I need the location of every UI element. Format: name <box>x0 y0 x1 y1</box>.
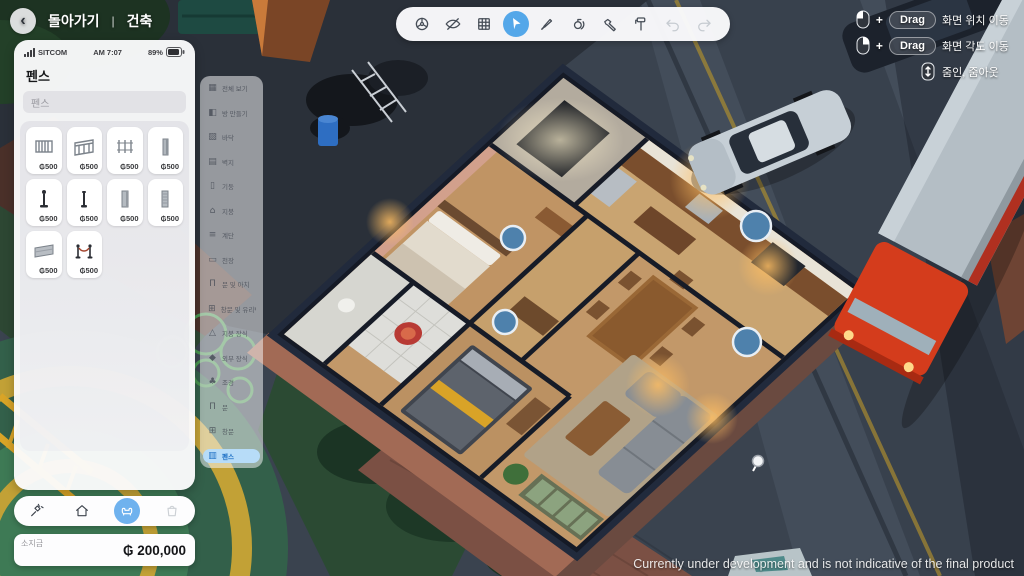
item-price: ₲500 <box>80 162 98 171</box>
wallet-label: 소지금 <box>21 538 43 549</box>
phone-status-bar: SITCOM AM 7:07 89% <box>14 40 195 59</box>
window2-icon: ⊞ <box>207 426 218 436</box>
category-bar: ▦ 전체 보기◧ 방 만들기▨ 바닥▤ 벽지▯ 기둥⌂ 지붕≡ 계단▭ 천장Π <box>200 76 263 468</box>
wallet-box: 소지금 ₲ 200,000 <box>14 534 195 566</box>
plus-sign: + <box>876 39 883 53</box>
item-price: ₲500 <box>120 214 138 223</box>
catalog-item-3[interactable]: ₲500 <box>107 127 143 174</box>
item-price: ₲500 <box>80 214 98 223</box>
camera-hint-zoom: 줌인, 줌아웃 <box>920 62 1014 81</box>
back-button[interactable]: ‹ <box>10 8 36 34</box>
window-icon: ⊞ <box>207 304 217 314</box>
category-label: 벽지 <box>222 157 234 167</box>
category-pillar[interactable]: ▯ 기둥 <box>203 179 260 193</box>
item-price: ₲500 <box>161 162 179 171</box>
plus-sign: + <box>876 13 883 27</box>
pillar-icon: ▯ <box>207 181 218 191</box>
catalog-item-1[interactable]: ₲500 <box>26 127 62 174</box>
item-price: ₲500 <box>120 162 138 171</box>
catalog-panel: SITCOM AM 7:07 89% 펜스 펜스 ₲500 ₲500 ₲500 … <box>14 40 195 490</box>
deco-icon: ◆ <box>207 353 218 363</box>
category-door[interactable]: Π 문 및 아치 <box>203 277 260 291</box>
shop-icon[interactable] <box>159 498 185 524</box>
landscape-icon: ♣ <box>207 377 218 387</box>
mode-label: 건축 <box>127 11 153 31</box>
roof-icon: ⌂ <box>207 206 218 216</box>
category-label: 계단 <box>222 230 234 240</box>
grid-view-icon[interactable] <box>471 11 497 37</box>
drag-chip: Drag <box>889 11 936 29</box>
post-cap-icon <box>71 195 97 211</box>
grid-icon: ▦ <box>207 83 218 93</box>
fence-icon: ▥ <box>207 451 218 461</box>
category-door2[interactable]: Π 문 <box>203 400 260 414</box>
category-label: 바닥 <box>222 132 234 142</box>
hint-label-pan: 화면 위치 이동 <box>942 12 1014 28</box>
hide-walls-icon[interactable] <box>440 11 466 37</box>
bottom-nav <box>14 496 195 526</box>
category-label: 창문 <box>222 426 234 436</box>
home-icon[interactable] <box>69 498 95 524</box>
mouse-right-button-icon <box>856 36 870 55</box>
wall-icon: ▤ <box>207 157 218 167</box>
category-label: 외부 장식 <box>222 353 248 363</box>
item-price: ₲500 <box>39 162 57 171</box>
pillar-fluted-icon <box>152 195 178 211</box>
item-price: ₲500 <box>39 266 57 275</box>
category-stairs[interactable]: ≡ 계단 <box>203 228 260 242</box>
bar-divider: | <box>112 14 115 28</box>
paint-brush-icon[interactable] <box>534 11 560 37</box>
fence-mesh-icon <box>31 143 57 159</box>
room-icon: ◧ <box>207 108 218 118</box>
category-window[interactable]: ⊞ 창문 및 유리벽 <box>203 302 260 316</box>
catalog-item-6[interactable]: ₲500 <box>67 179 103 226</box>
select-cursor-icon[interactable] <box>503 11 529 37</box>
catalog-item-7[interactable]: ₲500 <box>107 179 143 226</box>
catalog-item-4[interactable]: ₲500 <box>148 127 184 174</box>
catalog-item-2[interactable]: ₲500 <box>67 127 103 174</box>
scroll-wheel-icon <box>920 62 936 81</box>
dev-watermark: Currently under development and is not i… <box>633 557 1014 571</box>
item-price: ₲500 <box>39 214 57 223</box>
undo-icon[interactable] <box>660 11 686 37</box>
category-label: 기둥 <box>222 181 234 191</box>
catalog-item-5[interactable]: ₲500 <box>26 179 62 226</box>
category-label: 문 및 아치 <box>222 279 250 289</box>
category-room[interactable]: ◧ 방 만들기 <box>203 106 260 120</box>
catalog-item-10[interactable]: ₲500 <box>67 231 103 278</box>
wallet-amount: ₲ 200,000 <box>123 543 186 558</box>
category-wall[interactable]: ▤ 벽지 <box>203 155 260 169</box>
drag-chip: Drag <box>889 37 936 55</box>
fence-rail-icon <box>71 143 97 159</box>
category-label: 지붕 장식 <box>222 328 248 338</box>
search-value: 펜스 <box>31 95 49 110</box>
build-hammer-icon[interactable] <box>597 11 623 37</box>
category-label: 방 만들기 <box>222 108 248 118</box>
pillar-round-icon <box>112 195 138 211</box>
furnish-icon[interactable] <box>114 498 140 524</box>
clock-label: AM 7:07 <box>93 48 122 57</box>
demolish-hammer-icon[interactable] <box>628 11 654 37</box>
category-label: 전체 보기 <box>222 83 248 93</box>
carrier-label: SITCOM <box>38 48 67 57</box>
top-left-bar: ‹ 돌아가기 | 건축 <box>10 8 152 34</box>
battery-icon <box>166 47 185 57</box>
category-label: 문 <box>222 402 228 412</box>
build-tools-icon[interactable] <box>24 498 50 524</box>
rope-barrier-icon <box>71 247 97 263</box>
catalog-item-8[interactable]: ₲500 <box>148 179 184 226</box>
category-deco[interactable]: ◆ 외부 장식 <box>203 351 260 365</box>
fence-bars-icon <box>112 143 138 159</box>
item-price: ₲500 <box>80 266 98 275</box>
camera-hint-pan: + Drag 화면 위치 이동 <box>856 10 1014 29</box>
spray-tool-icon[interactable] <box>566 11 592 37</box>
item-price: ₲500 <box>161 214 179 223</box>
catalog-grid: ₲500 ₲500 ₲500 ₲500 ₲500 ₲500 ₲500 ₲500 <box>20 121 189 451</box>
door-icon: Π <box>207 279 218 289</box>
category-fence[interactable]: ▥ 펜스 <box>203 449 260 463</box>
signal-icon <box>24 48 35 57</box>
category-window2[interactable]: ⊞ 창문 <box>203 424 260 438</box>
battery-percent: 89% <box>148 48 163 57</box>
mouse-left-button-icon <box>856 10 870 29</box>
category-label: 조경 <box>222 377 234 387</box>
redo-icon[interactable] <box>691 11 717 37</box>
category-roofdeco[interactable]: △ 지붕 장식 <box>203 326 260 340</box>
hint-label-zoom: 줌인, 줌아웃 <box>942 64 1014 80</box>
category-roof[interactable]: ⌂ 지붕 <box>203 204 260 218</box>
camera-hint-rotate: + Drag 화면 각도 이동 <box>856 36 1014 55</box>
search-input[interactable]: 펜스 <box>23 91 186 113</box>
back-label[interactable]: 돌아가기 <box>48 11 100 31</box>
hint-label-rotate: 화면 각도 이동 <box>942 38 1014 54</box>
category-label: 창문 및 유리벽 <box>221 304 256 314</box>
door2-icon: Π <box>207 402 218 412</box>
roofdeco-icon: △ <box>207 328 218 338</box>
fence-panel-icon <box>152 143 178 159</box>
panel-title: 펜스 <box>14 59 195 91</box>
camera-hints: + Drag 화면 위치 이동 + Drag 화면 각도 이동 줌인, 줌아웃 <box>856 10 1014 81</box>
category-floor[interactable]: ▨ 바닥 <box>203 130 260 144</box>
category-label: 펜스 <box>222 451 234 461</box>
wheel-menu-icon[interactable] <box>409 11 435 37</box>
category-label: 지붕 <box>222 206 234 216</box>
build-toolbar <box>396 7 730 41</box>
stairs-icon: ≡ <box>207 230 218 240</box>
category-ceiling[interactable]: ▭ 천장 <box>203 253 260 267</box>
floor-icon: ▨ <box>207 132 218 142</box>
catalog-item-9[interactable]: ₲500 <box>26 231 62 278</box>
post-ball-icon <box>31 195 57 211</box>
category-landscape[interactable]: ♣ 조경 <box>203 375 260 389</box>
category-label: 천장 <box>222 255 234 265</box>
wall-block-icon <box>31 247 57 263</box>
category-grid[interactable]: ▦ 전체 보기 <box>203 81 260 95</box>
ceiling-icon: ▭ <box>207 255 218 265</box>
